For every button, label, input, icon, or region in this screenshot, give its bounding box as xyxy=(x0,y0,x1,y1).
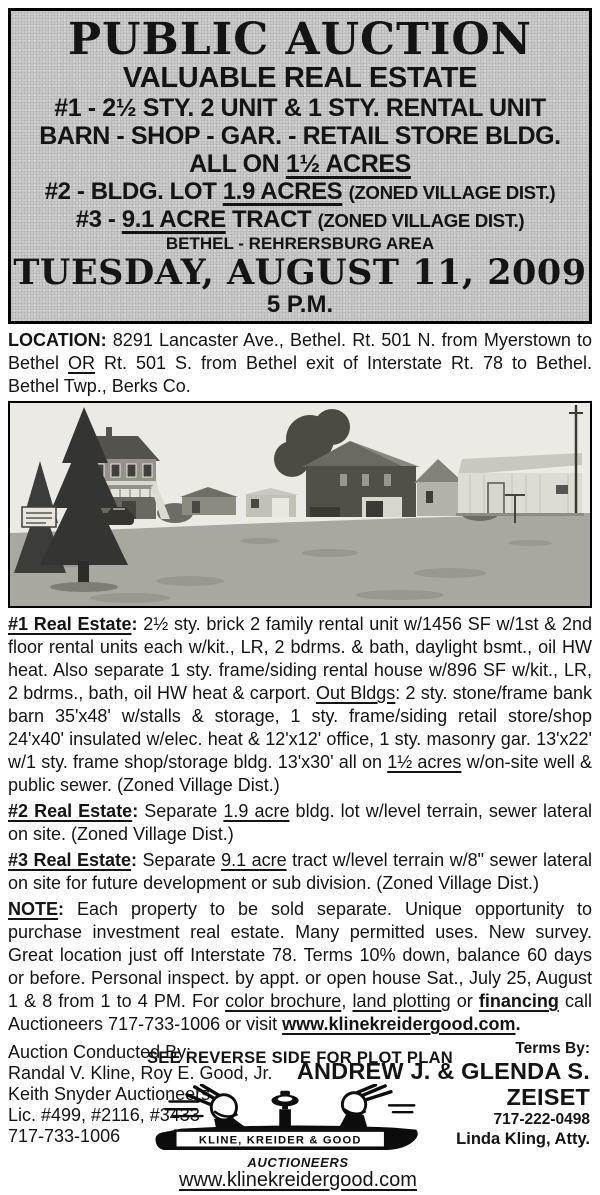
conducted-by-label: Auction Conducted By: xyxy=(8,1042,272,1063)
header-panel: PUBLIC AUCTION VALUABLE REAL ESTATE #1 -… xyxy=(8,8,592,324)
auction-date: TUESDAY, AUGUST 11, 2009 xyxy=(13,254,587,292)
flyer-subtitle: VALUABLE REAL ESTATE xyxy=(13,63,587,94)
real-estate-1-paragraph: #1 Real Estate: 2½ sty. brick 2 family r… xyxy=(8,613,592,797)
flyer-title: PUBLIC AUCTION xyxy=(13,17,587,63)
note-paragraph: NOTE: Each property to be sold separate.… xyxy=(8,898,592,1036)
real-estate-2-paragraph: #2 Real Estate: Separate 1.9 acre bldg. … xyxy=(8,800,592,846)
flyer-page: PUBLIC AUCTION VALUABLE REAL ESTATE #1 -… xyxy=(0,0,600,1068)
location-paragraph: LOCATION: 8291 Lancaster Ave., Bethel. R… xyxy=(8,329,592,398)
property-photo-graphic xyxy=(10,403,590,606)
right-hand xyxy=(339,1085,391,1129)
auction-flyer-scan: { "colors": {"header_bg":"#c9c9c9","ink"… xyxy=(0,0,600,1195)
logo-banner-text: KLINE, KREIDER & GOOD xyxy=(199,1135,362,1147)
property-photo xyxy=(8,401,592,608)
auctioneer-names: Randal V. Kline, Roy E. Good, Jr. xyxy=(8,1063,272,1084)
headline-parcel-1: #1 - 2½ STY. 2 UNIT & 1 STY. RENTAL UNIT xyxy=(13,94,587,122)
headline-parcel-2: #2 - BLDG. LOT 1.9 ACRES (ZONED VILLAGE … xyxy=(13,178,587,206)
left-hand xyxy=(187,1085,247,1129)
wood-plane-logo-icon: KLINE, KREIDER & GOOD xyxy=(146,1084,430,1152)
auction-sign xyxy=(22,507,56,527)
seller-name-line-1: ANDREW J. & GLENDA S. xyxy=(297,1058,590,1084)
real-estate-3-paragraph: #3 Real Estate: Separate 9.1 acre tract … xyxy=(8,849,592,895)
terms-by-label: Terms By: xyxy=(297,1040,590,1058)
footer: Auction Conducted By: Randal V. Kline, R… xyxy=(8,1040,592,1192)
headline-parcel-3: #3 - 9.1 ACRE TRACT (ZONED VILLAGE DIST.… xyxy=(13,206,587,234)
auctioneers-label: AUCTIONEERS xyxy=(93,1155,503,1170)
website-url: www.klinekreidergood.com xyxy=(93,1169,503,1192)
auction-time: 5 P.M. xyxy=(13,292,587,318)
kline-kreider-good-logo: KLINE, KREIDER & GOOD xyxy=(146,1084,430,1152)
headline-outbuildings: BARN - SHOP - GAR. - RETAIL STORE BLDG. xyxy=(13,122,587,150)
area-line: BETHEL - REHRERSBURG AREA xyxy=(13,234,587,254)
headline-acreage: ALL ON 1½ ACRES xyxy=(13,150,587,178)
plane-knob xyxy=(271,1091,298,1129)
